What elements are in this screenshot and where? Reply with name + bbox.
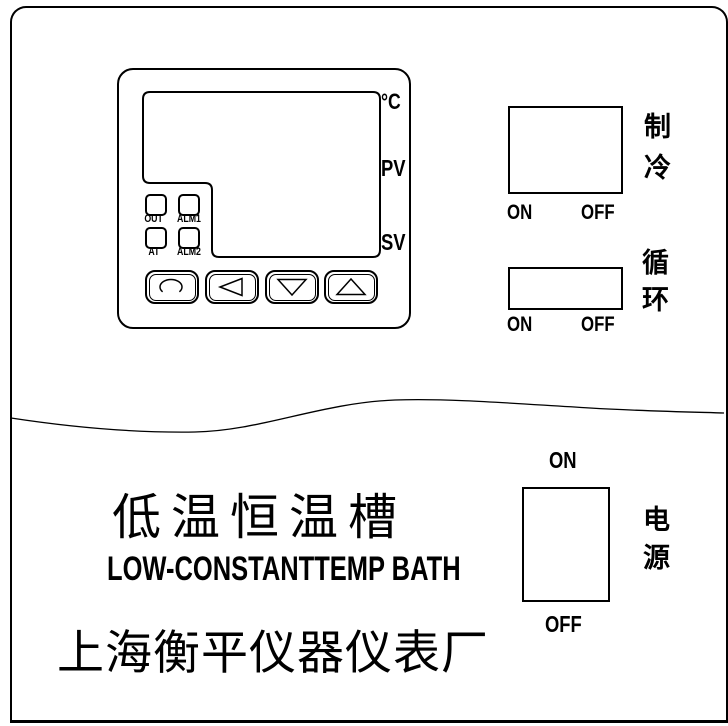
- sv-label: SV: [381, 230, 412, 255]
- cooling-switch-name: 制冷: [644, 113, 671, 183]
- pv-label: PV: [381, 156, 412, 181]
- set-key[interactable]: [145, 270, 199, 304]
- arrow-up-icon: [333, 275, 369, 299]
- celsius-unit-label: °C: [381, 90, 406, 114]
- shift-key[interactable]: [205, 270, 259, 304]
- set-key-cap: [149, 274, 196, 301]
- wave-divider: [10, 390, 724, 450]
- decrement-key[interactable]: [265, 270, 319, 304]
- power-off-label: OFF: [545, 612, 591, 636]
- temperature-controller: OUT ALM1 AT ALM2 °C PV SV: [117, 68, 407, 325]
- circulation-off-label: OFF: [581, 314, 623, 336]
- decrement-key-cap: [269, 274, 316, 301]
- increment-key[interactable]: [324, 270, 378, 304]
- power-switch[interactable]: [522, 487, 610, 602]
- alm1-indicator-label: ALM1: [163, 214, 215, 225]
- product-title-zh: 低温恒温槽: [112, 492, 407, 544]
- power-on-label: ON: [549, 448, 584, 472]
- power-switch-name: 电源: [643, 506, 670, 573]
- manufacturer-name: 上海衡平仪器仪表厂: [57, 629, 489, 679]
- circulation-on-label: ON: [507, 314, 539, 336]
- cooling-switch[interactable]: [508, 106, 623, 194]
- cooling-off-label: OFF: [581, 202, 623, 224]
- circulation-switch-name: 循环: [642, 249, 669, 315]
- cooling-on-label: ON: [507, 202, 539, 224]
- arrow-left-icon: [214, 275, 250, 299]
- instrument-front-panel: OUT ALM1 AT ALM2 °C PV SV: [0, 0, 728, 726]
- circulation-switch[interactable]: [508, 267, 623, 310]
- arrow-down-icon: [274, 275, 310, 299]
- increment-key-cap: [328, 274, 375, 301]
- loop-icon: [154, 275, 190, 299]
- alm2-indicator-label: ALM2: [163, 247, 215, 258]
- product-title-en: LOW-CONSTANTTEMP BATH: [107, 551, 461, 587]
- shift-key-cap: [209, 274, 256, 301]
